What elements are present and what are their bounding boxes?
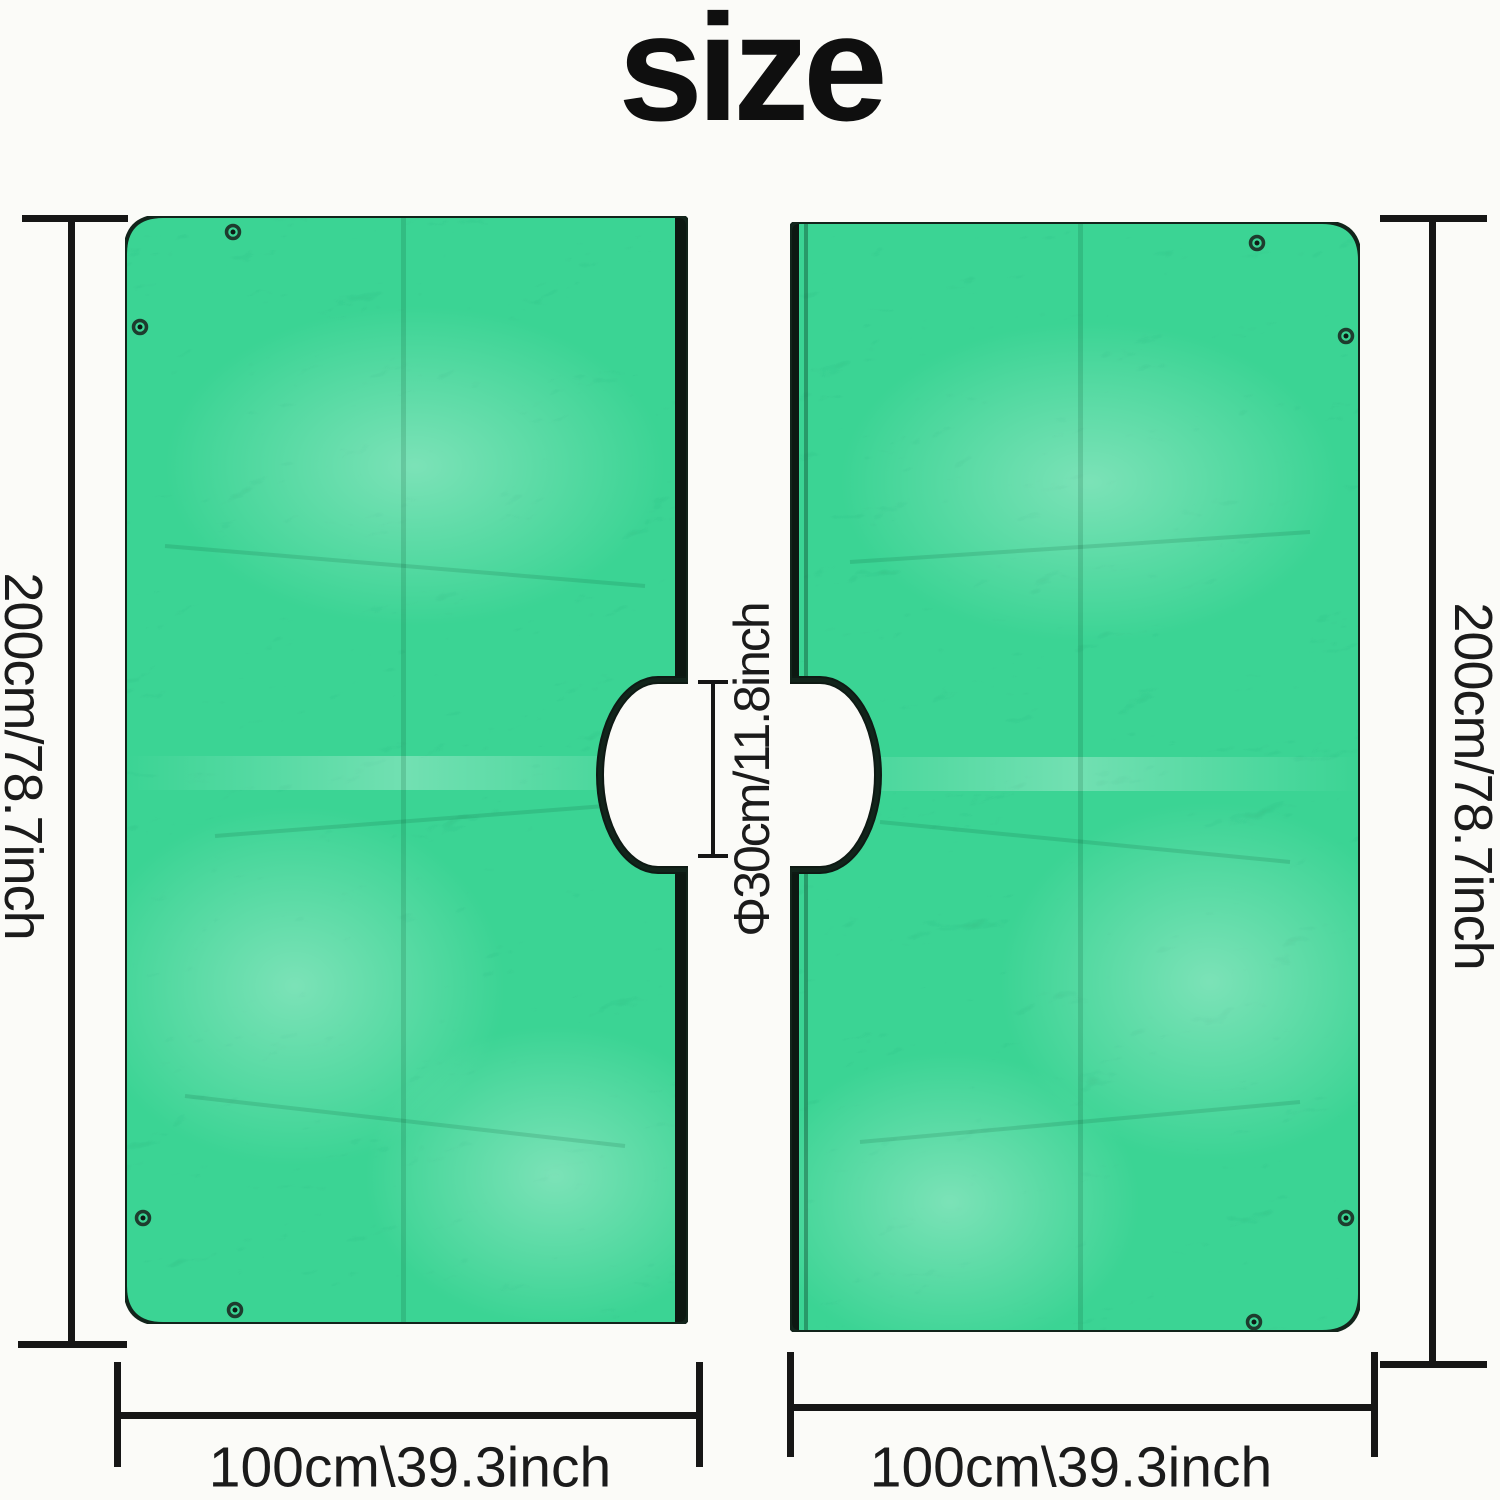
hole-diameter-dimension-line — [711, 682, 715, 858]
size-diagram: size — [0, 0, 1500, 1500]
right-tarp-panel — [790, 222, 1360, 1332]
right-width-dimension-tick-left — [787, 1352, 794, 1457]
right-height-label: 200cm/78.7inch — [1446, 602, 1500, 969]
right-height-dimension-tick-bottom — [1380, 1361, 1487, 1368]
left-height-dimension-tick-bottom — [18, 1341, 127, 1348]
left-width-dimension-tick-left — [114, 1362, 121, 1467]
left-width-dimension-line — [117, 1412, 703, 1419]
right-width-dimension-line — [790, 1404, 1376, 1411]
left-height-label: 200cm/78.7inch — [0, 572, 50, 939]
left-tarp-panel — [125, 216, 688, 1324]
left-width-label: 100cm\39.3inch — [209, 1440, 611, 1497]
left-height-dimension-line — [68, 215, 75, 1348]
left-height-dimension-tick-top — [22, 215, 128, 222]
right-height-dimension-tick-top — [1380, 215, 1487, 222]
right-height-dimension-line — [1429, 215, 1436, 1368]
hole-diameter-label: Φ30cm/11.8inch — [727, 603, 777, 936]
right-width-dimension-tick-right — [1371, 1352, 1378, 1457]
left-width-dimension-tick-right — [696, 1362, 703, 1467]
page-title: size — [0, 0, 1500, 144]
right-notch-edge — [790, 680, 878, 870]
right-width-label: 100cm\39.3inch — [870, 1440, 1272, 1497]
left-notch-edge — [600, 680, 688, 870]
